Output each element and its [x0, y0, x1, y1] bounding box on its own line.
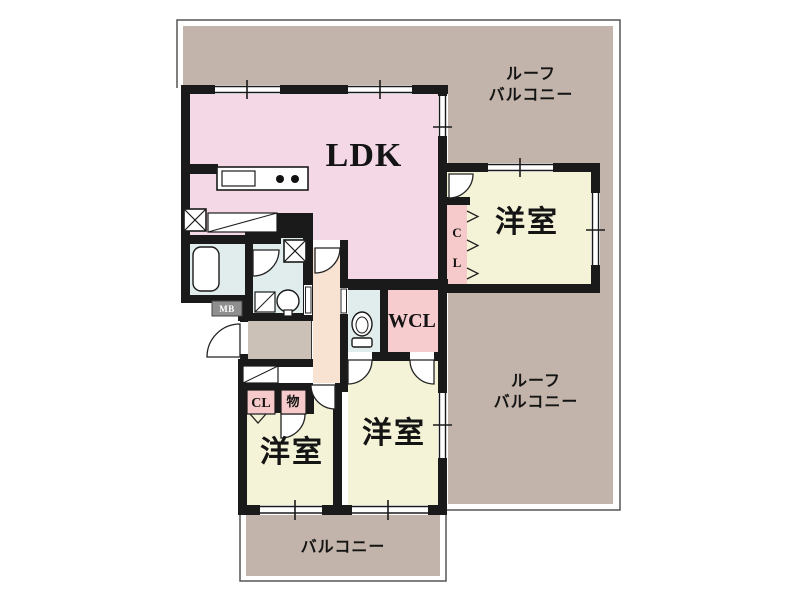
- roof-balcony-right-label-line1: ルーフ: [511, 373, 561, 390]
- wall-bath-left: [181, 235, 190, 303]
- wall-hall-right: [340, 240, 348, 392]
- wall-toilet-wcl: [380, 288, 388, 352]
- balcony-area: バルコニー: [240, 515, 446, 581]
- wall-ldk-bottom: [340, 279, 448, 290]
- storage-label: 物: [286, 394, 299, 409]
- toilet-icon: [352, 312, 372, 347]
- door-arc-entrance: [207, 324, 240, 357]
- roof-balcony-right-label-line2: バルコニー: [494, 393, 579, 411]
- pipe-space-icon-1: [184, 209, 206, 231]
- room-label-bedroom-bottom-center: 洋室: [362, 416, 426, 450]
- room-label-bedroom-bottom-left: 洋室: [260, 435, 324, 469]
- room-label-bedroom-top-right: 洋室: [495, 205, 559, 239]
- kitchen-counter-icon: [217, 167, 308, 190]
- wall-bath-washroom: [245, 238, 253, 321]
- roof-balcony-top-label-line1: ルーフ: [506, 66, 556, 83]
- ldk-storage-icon: [208, 213, 277, 232]
- roof-balcony-top-label-line2: バルコニー: [489, 86, 574, 104]
- balcony-label: バルコニー: [301, 538, 386, 556]
- wall-kitchen-stub: [181, 164, 218, 174]
- pipe-space-icon-2: [284, 240, 306, 262]
- door-leaf-toilet: [341, 289, 347, 313]
- floor-plan-drawing: ルーフ バルコニー ルーフ バルコニー バルコニー: [0, 0, 800, 600]
- meter-box-label: MB: [219, 304, 235, 314]
- room-label-ldk: LDK: [326, 137, 403, 174]
- entrance-floor: [247, 321, 311, 361]
- wall-right-main: [438, 172, 447, 515]
- wall-closet-tr-top: [438, 197, 470, 205]
- stove-burner-icon-1: [276, 175, 284, 183]
- stove-burner-icon-2: [291, 175, 299, 183]
- wall-bedroom-tr-bottom: [438, 284, 600, 293]
- shoe-cabinet-icon: [243, 366, 278, 383]
- opening-hall-top: [313, 240, 340, 248]
- door-leaf-washroom: [306, 287, 312, 313]
- kitchen-sink-icon: [222, 171, 255, 186]
- wall-closet-divider: [275, 385, 281, 413]
- room-label-wcl: WCL: [388, 310, 436, 332]
- opening-entrance: [240, 322, 248, 354]
- bathtub-icon: [193, 247, 219, 291]
- closet-top-right-floor: [447, 205, 467, 284]
- closet-tr-label-c: C: [452, 225, 461, 240]
- washing-machine-icon: [255, 292, 275, 312]
- closet-bl-label: CL: [251, 396, 270, 411]
- meter-box: MB: [212, 301, 242, 316]
- wall-washroom-bottom: [238, 313, 313, 321]
- closet-tr-label-l: L: [453, 255, 462, 270]
- floor-plan: ルーフ バルコニー ルーフ バルコニー バルコニー: [0, 0, 800, 600]
